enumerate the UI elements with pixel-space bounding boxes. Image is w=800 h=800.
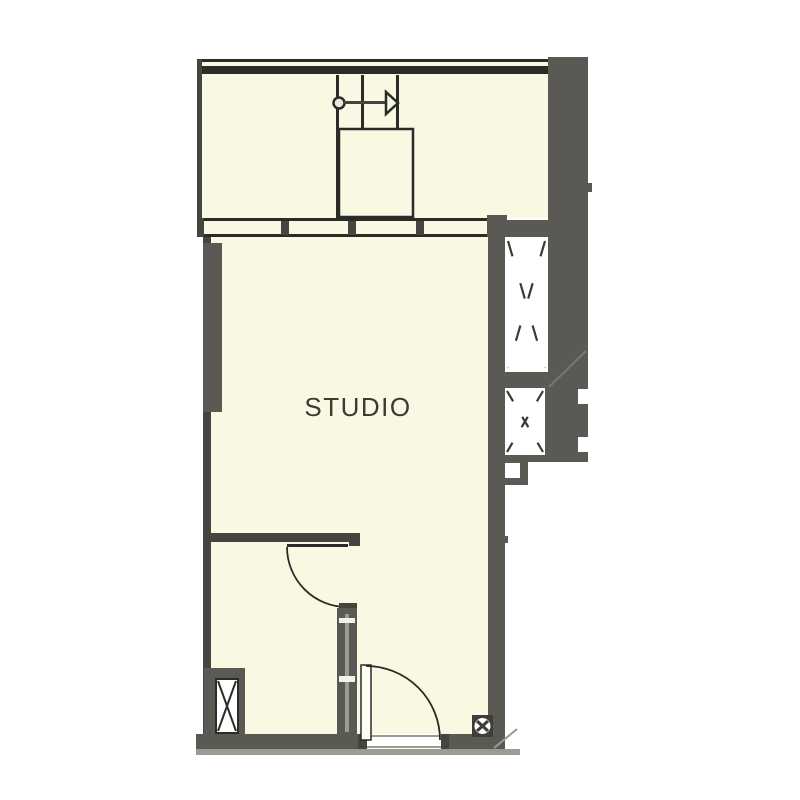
- partition-end-cap: [349, 533, 360, 546]
- stub-wall-joint: [339, 676, 355, 682]
- window-mullion: [281, 221, 289, 235]
- interior-door-leaf: [287, 544, 348, 547]
- outer-wall-tick: [588, 183, 592, 192]
- window-bottom-line: [197, 234, 487, 237]
- floor-plan: STUDIO: [0, 0, 800, 800]
- entry-threshold-line: [367, 746, 441, 748]
- stub-wall-core-line: [345, 614, 349, 732]
- entry-threshold-line: [367, 735, 441, 737]
- balcony-area: [197, 59, 548, 218]
- window-left-cap: [197, 218, 204, 237]
- window-mullion: [348, 221, 356, 235]
- window-band: [197, 215, 507, 240]
- bottom-wall-shadow-strip: [196, 749, 520, 755]
- balcony-top-wall-outer: [197, 59, 548, 62]
- shaft-divider-wall: [505, 372, 548, 388]
- partition-wall: [204, 533, 360, 542]
- entry-door-leaf: [361, 665, 371, 740]
- shaft2-door-notch: [578, 389, 588, 404]
- balcony-top-wall-inner: [197, 66, 548, 74]
- shaft2-right-lining: [545, 388, 548, 455]
- shaft2-door-notch: [578, 437, 588, 452]
- balcony-left-wall: [197, 59, 202, 218]
- bottom-wall: [196, 734, 505, 749]
- left-wall-pier: [203, 243, 222, 412]
- shaft1-top-wall: [505, 220, 548, 237]
- right-wall-tick: [505, 536, 508, 543]
- survey-marker-icon: [472, 715, 493, 737]
- stub-wall-joint: [339, 618, 355, 623]
- shaft1-void: [505, 237, 548, 372]
- bottom-left-column: [204, 668, 245, 734]
- window-top-line: [197, 218, 505, 221]
- studio-room-label: STUDIO: [300, 392, 416, 423]
- entry-right-jamb: [441, 734, 449, 749]
- window-mullion: [416, 221, 424, 235]
- balcony-floor: [197, 59, 548, 218]
- shaft-foot-notch: [505, 463, 520, 478]
- right-wall: [488, 218, 505, 749]
